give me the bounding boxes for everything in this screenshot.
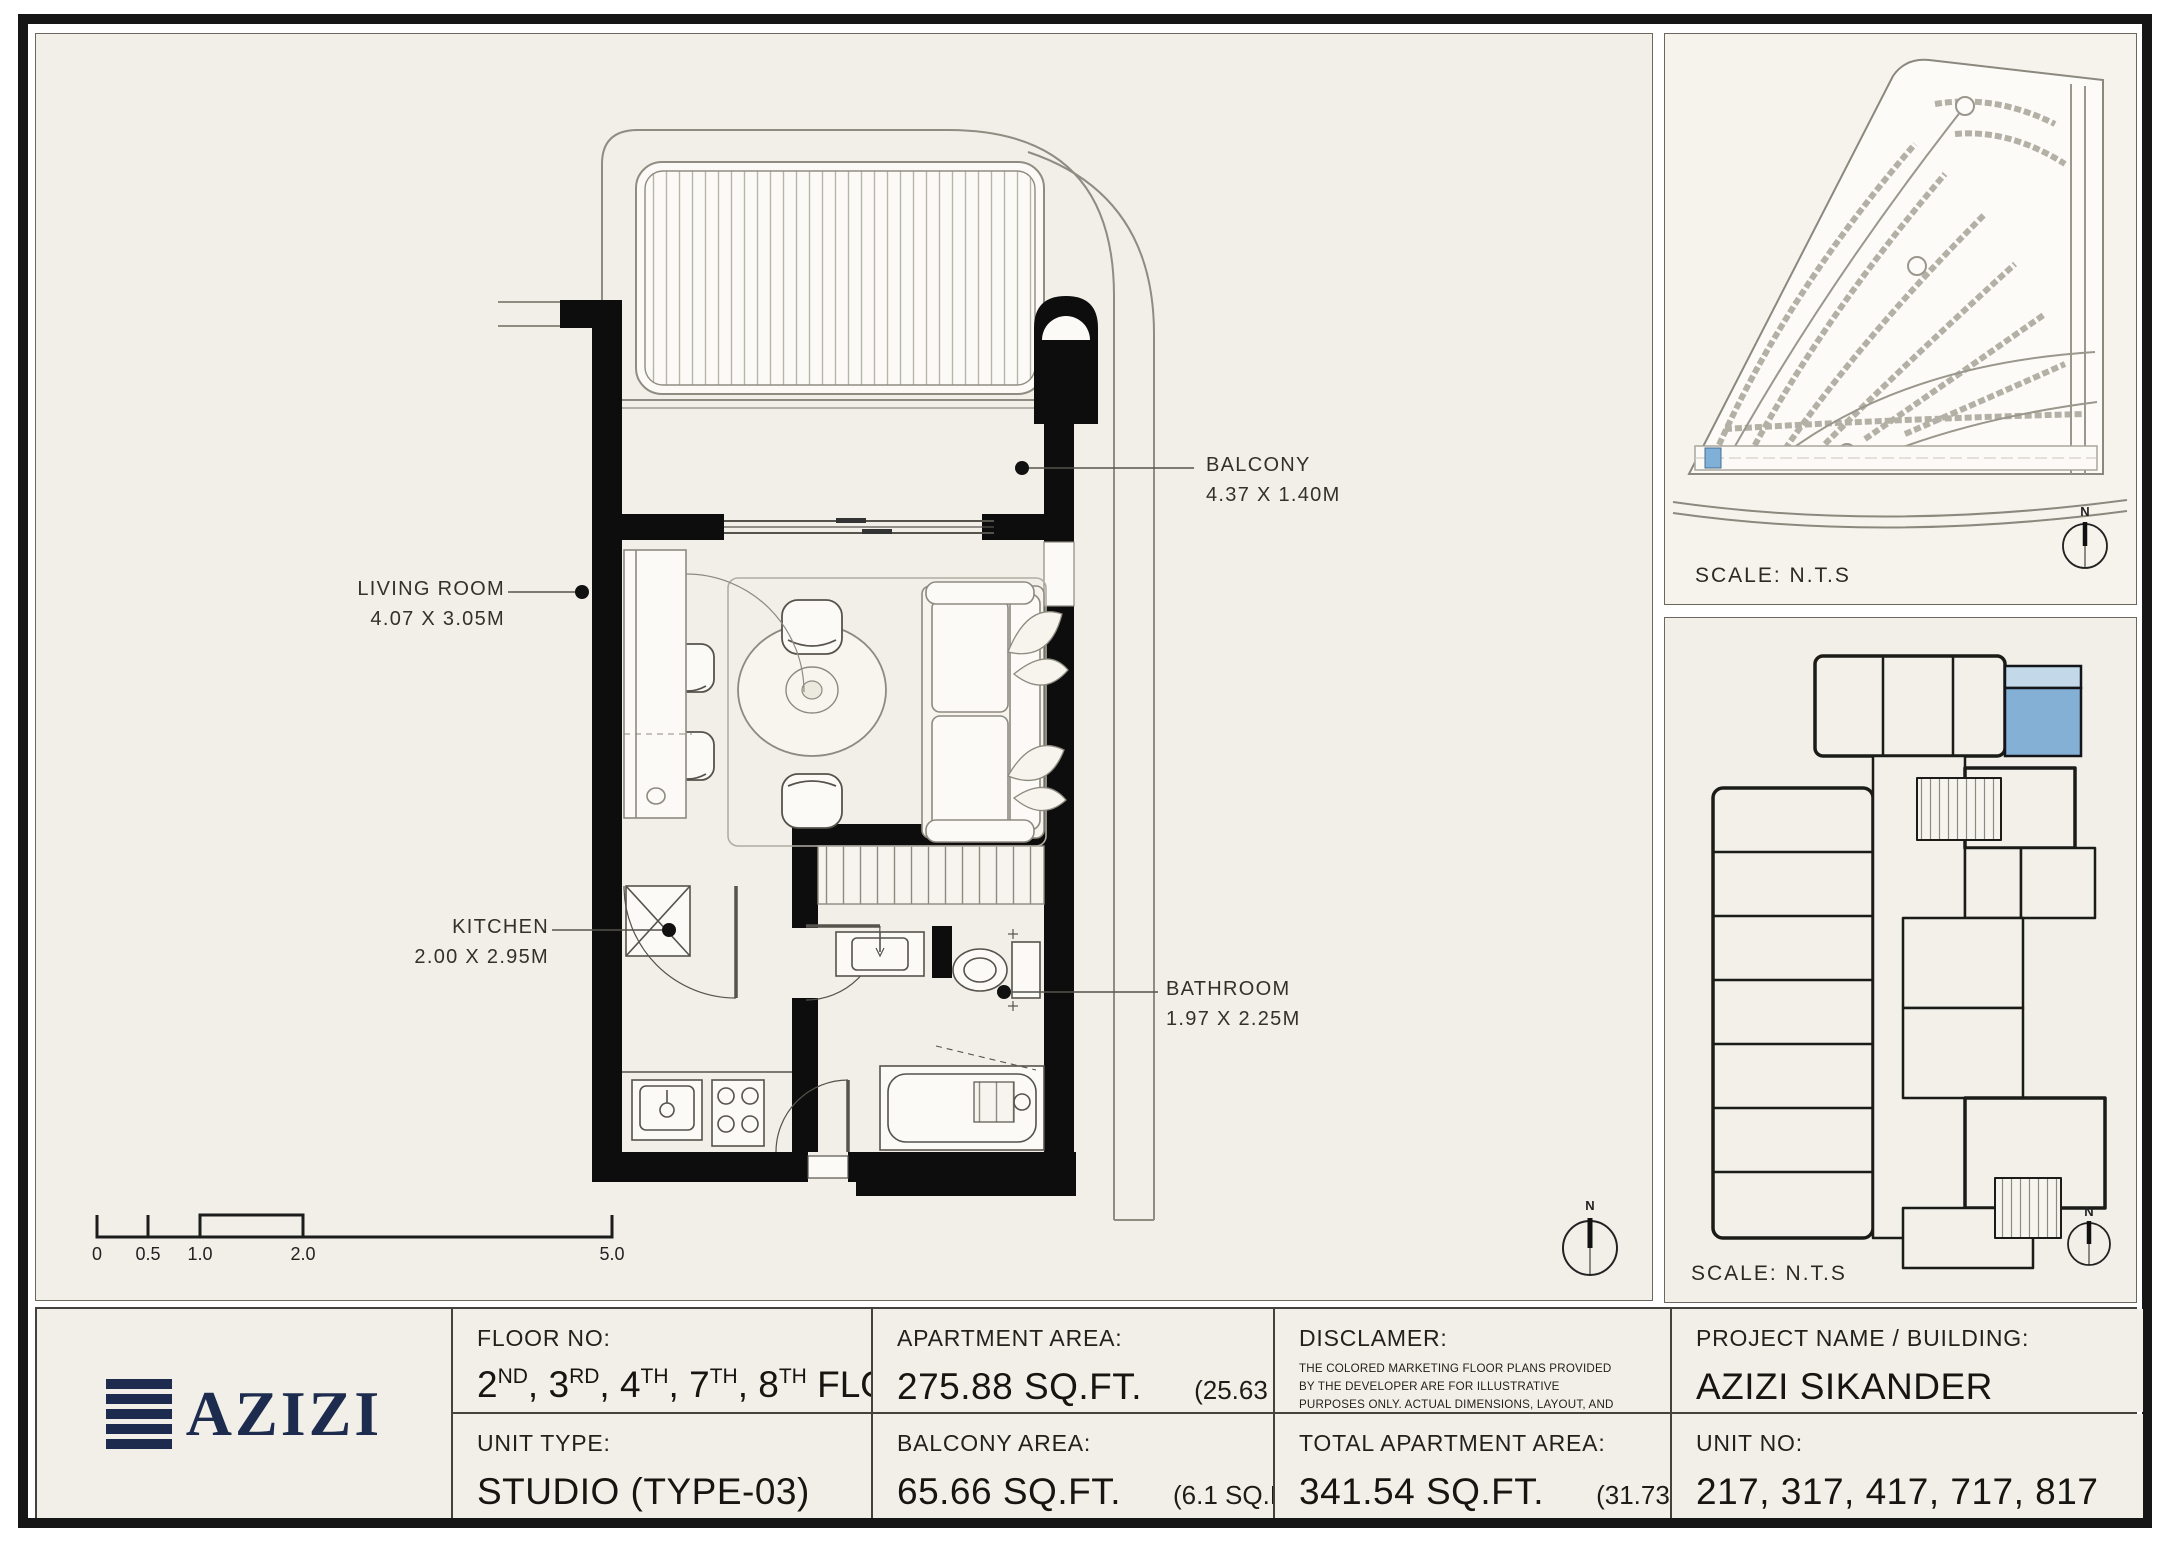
closet-hatch xyxy=(818,846,1044,904)
compass-main xyxy=(1563,1218,1617,1275)
label-balcony: BALCONY 4.37 X 1.40M xyxy=(1206,450,1341,510)
unit-type-value: STUDIO (TYPE-03) xyxy=(477,1471,810,1513)
north-label-site: N xyxy=(2080,504,2089,519)
balcony-area-label: BALCONY AREA: xyxy=(897,1430,1249,1457)
north-label-main: N xyxy=(1585,1198,1594,1213)
floorplan-panel: LIVING ROOM 4.07 X 3.05M KITCHEN 2.00 X … xyxy=(35,33,1653,1301)
unit-type-label: UNIT TYPE: xyxy=(477,1430,847,1457)
floor-no-cell: FLOOR NO: 2ND, 3RD, 4TH, 7TH, 8TH FLOOR xyxy=(453,1309,871,1412)
balcony-area xyxy=(602,162,1044,408)
scale-tick-0: 0 xyxy=(92,1244,102,1265)
total-area-cell: TOTAL APARTMENT AREA: 341.54 SQ.FT. (31.… xyxy=(1275,1414,1670,1518)
total-area-label: TOTAL APARTMENT AREA: xyxy=(1299,1430,1646,1457)
floorplan-drawing xyxy=(36,34,1651,1299)
site-highlight-lot xyxy=(1705,448,1721,468)
apartment-area-value: 275.88 SQ.FT. xyxy=(897,1366,1142,1408)
unit-type-cell: UNIT TYPE: STUDIO (TYPE-03) xyxy=(453,1414,871,1518)
floor-no-value: 2ND, 3RD, 4TH, 7TH, 8TH FLOOR xyxy=(477,1364,847,1406)
title-block: AZIZI FLOOR NO: 2ND, 3RD, 4TH, 7TH, 8TH … xyxy=(35,1307,2137,1518)
sliding-window xyxy=(724,518,994,534)
label-kitchen: KITCHEN 2.00 X 2.95M xyxy=(414,912,549,972)
disclaimer-text: THE COLORED MARKETING FLOOR PLANS PROVID… xyxy=(1299,1360,1618,1412)
apartment-area-label: APARTMENT AREA: xyxy=(897,1325,1249,1352)
azizi-logo: AZIZI xyxy=(106,1379,382,1449)
compass-site xyxy=(2063,522,2107,568)
floor-no-label: FLOOR NO: xyxy=(477,1325,847,1352)
compass-key xyxy=(2068,1221,2110,1265)
site-map-panel: N SCALE: N.T.S xyxy=(1664,33,2137,605)
column xyxy=(1034,296,1098,424)
site-scale-text: SCALE: N.T.S xyxy=(1695,564,1851,588)
apartment-area-metric: (25.63 SQ.M) xyxy=(1194,1375,1273,1406)
floorplan-page: LIVING ROOM 4.07 X 3.05M KITCHEN 2.00 X … xyxy=(0,0,2170,1542)
site-map-drawing xyxy=(1665,34,2135,603)
site-map xyxy=(1673,60,2127,528)
balcony-area-value: 65.66 SQ.FT. xyxy=(897,1471,1121,1513)
scale-tick-20: 2.0 xyxy=(290,1244,315,1265)
logo-cell: AZIZI xyxy=(37,1309,451,1518)
total-area-metric: (31.73 SQ.M) xyxy=(1596,1480,1670,1511)
project-name-label: PROJECT NAME / BUILDING: xyxy=(1696,1325,2119,1352)
azizi-logo-wordmark: AZIZI xyxy=(186,1382,382,1446)
balcony-area-metric: (6.1 SQ.M) xyxy=(1173,1480,1273,1511)
key-plan-drawing xyxy=(1665,618,2135,1301)
wall-niche xyxy=(1044,542,1074,606)
unit-no-cell: UNIT NO: 217, 317, 417, 717, 817 xyxy=(1672,1414,2143,1518)
scale-tick-05: 0.5 xyxy=(135,1244,160,1265)
disclaimer-label: DISCLAMER: xyxy=(1299,1325,1646,1352)
scale-tick-50: 5.0 xyxy=(599,1244,624,1265)
label-bathroom: BATHROOM 1.97 X 2.25M xyxy=(1166,974,1301,1034)
balcony-area-cell: BALCONY AREA: 65.66 SQ.FT. (6.1 SQ.M) xyxy=(873,1414,1273,1518)
total-area-value: 341.54 SQ.FT. xyxy=(1299,1471,1544,1513)
north-label-key: N xyxy=(2084,1204,2093,1219)
key-plan-highlight-unit xyxy=(2005,666,2081,756)
scale-tick-10: 1.0 xyxy=(187,1244,212,1265)
scale-bar xyxy=(97,1215,612,1237)
project-name-value: AZIZI SIKANDER xyxy=(1696,1366,1993,1408)
unit-no-label: UNIT NO: xyxy=(1696,1430,2119,1457)
key-scale-text: SCALE: N.T.S xyxy=(1691,1262,1847,1286)
project-name-cell: PROJECT NAME / BUILDING: AZIZI SIKANDER xyxy=(1672,1309,2143,1412)
label-living-room: LIVING ROOM 4.07 X 3.05M xyxy=(357,574,505,634)
key-plan-panel: N SCALE: N.T.S xyxy=(1664,617,2137,1303)
unit-no-value: 217, 317, 417, 717, 817 xyxy=(1696,1471,2098,1513)
apartment-area-cell: APARTMENT AREA: 275.88 SQ.FT. (25.63 SQ.… xyxy=(873,1309,1273,1412)
kitchen-fixtures xyxy=(622,886,792,1146)
disclaimer-cell: DISCLAMER: THE COLORED MARKETING FLOOR P… xyxy=(1275,1309,1670,1412)
azizi-logo-bars-icon xyxy=(106,1379,172,1449)
